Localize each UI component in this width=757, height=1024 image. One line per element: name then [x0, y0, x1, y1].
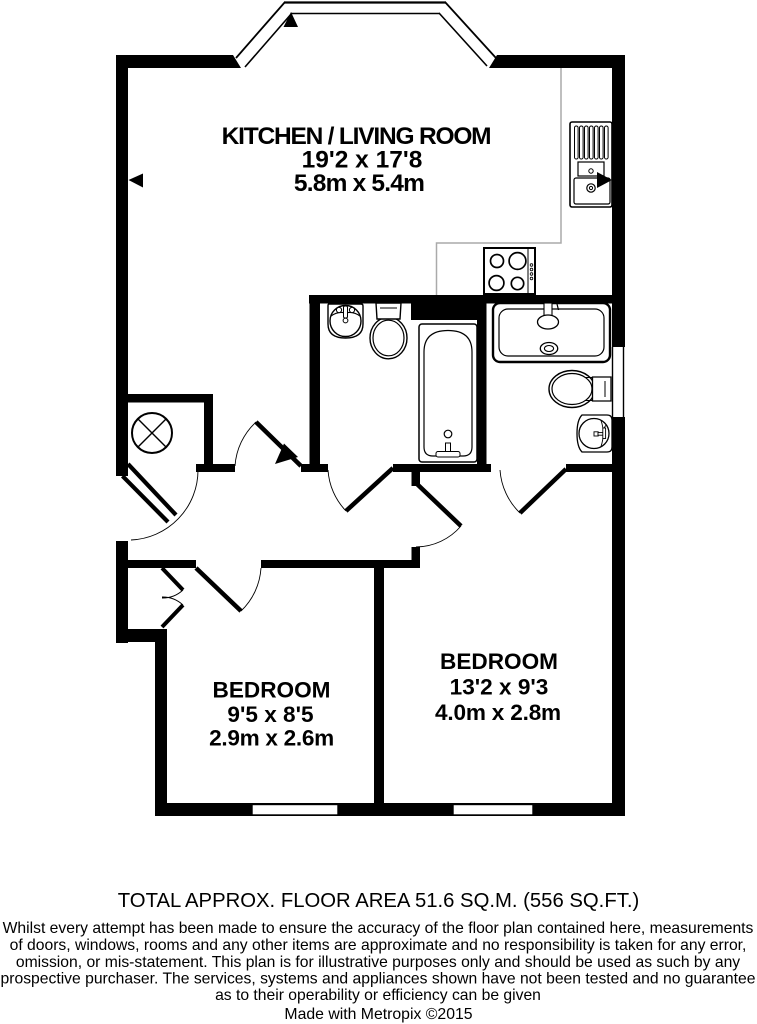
svg-text:BEDROOM: BEDROOM	[213, 678, 331, 703]
svg-text:4.0m x 2.8m: 4.0m x 2.8m	[435, 700, 561, 725]
svg-text:2.9m x 2.6m: 2.9m x 2.6m	[209, 726, 334, 751]
svg-text:of doors, windows, rooms and a: of doors, windows, rooms and any other i…	[10, 937, 747, 954]
svg-text:9'5 x 8'5: 9'5 x 8'5	[227, 702, 313, 727]
svg-text:as to their operability or eff: as to their operability or efficiency ca…	[215, 987, 541, 1004]
svg-text:prospective purchaser. The ser: prospective purchaser. The services, sys…	[1, 971, 756, 988]
svg-text:omission, or mis-statement. Th: omission, or mis-statement. This plan is…	[16, 954, 740, 971]
svg-text:Whilst every attempt has been: Whilst every attempt has been made to en…	[3, 920, 754, 937]
svg-text:TOTAL APPROX. FLOOR AREA 51.6: TOTAL APPROX. FLOOR AREA 51.6 SQ.M. (556…	[118, 890, 639, 912]
svg-text:Made with Metropix ©2015: Made with Metropix ©2015	[284, 1006, 472, 1023]
svg-text:BEDROOM: BEDROOM	[440, 649, 558, 674]
svg-text:5.8m x 5.4m: 5.8m x 5.4m	[294, 170, 424, 197]
svg-text:13'2 x 9'3: 13'2 x 9'3	[450, 675, 549, 700]
